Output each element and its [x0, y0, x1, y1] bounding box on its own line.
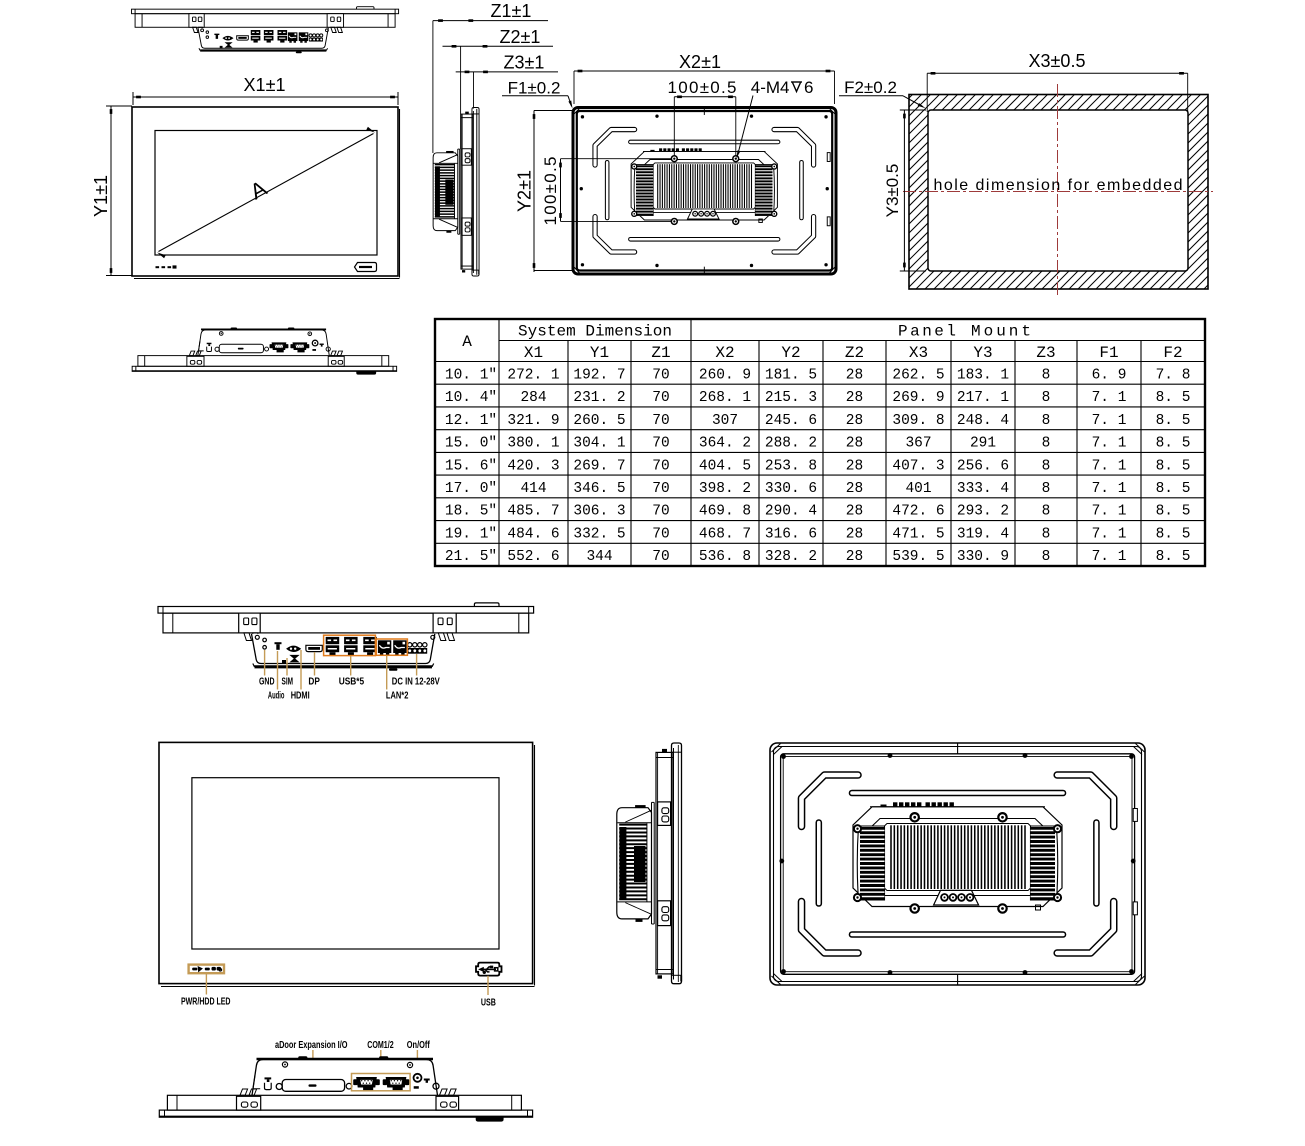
svg-text:333. 4: 333. 4: [957, 481, 1009, 497]
svg-text:Z2: Z2: [845, 344, 864, 362]
svg-text:7. 1: 7. 1: [1092, 549, 1127, 565]
svg-text:F1±0.2: F1±0.2: [508, 79, 561, 98]
svg-text:17. 0": 17. 0": [445, 481, 497, 497]
svg-text:253. 8: 253. 8: [765, 458, 817, 474]
svg-text:70: 70: [652, 390, 669, 406]
svg-text:328. 2: 328. 2: [765, 549, 817, 565]
svg-text:380. 1: 380. 1: [507, 436, 559, 452]
svg-text:7. 1: 7. 1: [1092, 390, 1127, 406]
svg-text:215. 3: 215. 3: [765, 390, 817, 406]
svg-text:SIM: SIM: [282, 677, 294, 688]
svg-text:304. 1: 304. 1: [573, 436, 625, 452]
svg-text:284: 284: [520, 390, 546, 406]
svg-text:Z1: Z1: [651, 344, 670, 362]
svg-text:10. 1": 10. 1": [445, 367, 497, 383]
svg-text:291: 291: [970, 436, 996, 452]
svg-text:8. 5: 8. 5: [1156, 436, 1191, 452]
svg-text:552. 6: 552. 6: [507, 549, 559, 565]
svg-text:Y1±1: Y1±1: [91, 175, 111, 217]
svg-text:248. 4: 248. 4: [957, 413, 1009, 429]
svg-text:Y3±0.5: Y3±0.5: [883, 164, 902, 218]
svg-text:LAN*2: LAN*2: [386, 690, 409, 701]
svg-text:536. 8: 536. 8: [699, 549, 751, 565]
svg-text:7. 1: 7. 1: [1092, 413, 1127, 429]
svg-text:12. 1": 12. 1": [445, 413, 497, 429]
svg-text:8: 8: [1042, 390, 1051, 406]
svg-text:A: A: [462, 333, 472, 351]
svg-text:401: 401: [905, 481, 931, 497]
svg-text:344: 344: [586, 549, 612, 565]
svg-text:70: 70: [652, 549, 669, 565]
svg-text:272. 1: 272. 1: [507, 367, 559, 383]
svg-text:469. 8: 469. 8: [699, 504, 751, 520]
svg-text:Z3: Z3: [1036, 344, 1055, 362]
svg-text:7. 1: 7. 1: [1092, 526, 1127, 542]
svg-text:8: 8: [1042, 367, 1051, 383]
svg-text:Z2±1: Z2±1: [500, 27, 541, 47]
svg-text:aDoor Expansion I/O: aDoor Expansion I/O: [275, 1040, 348, 1051]
svg-text:X1: X1: [524, 344, 543, 362]
svg-text:6: 6: [804, 78, 813, 97]
svg-text:HDMI: HDMI: [291, 690, 310, 701]
svg-text:28: 28: [846, 549, 863, 565]
svg-text:8. 5: 8. 5: [1156, 549, 1191, 565]
svg-text:GND: GND: [259, 677, 275, 688]
svg-text:COM1/2: COM1/2: [367, 1040, 394, 1051]
svg-text:X2: X2: [715, 344, 734, 362]
svg-text:539. 5: 539. 5: [892, 549, 944, 565]
svg-text:Y2±1: Y2±1: [515, 170, 535, 212]
svg-text:hole dimension for embedded: hole dimension for embedded: [934, 177, 1183, 194]
svg-text:6. 9: 6. 9: [1092, 367, 1127, 383]
svg-text:70: 70: [652, 504, 669, 520]
svg-text:484. 6: 484. 6: [507, 526, 559, 542]
svg-text:Y3: Y3: [973, 344, 992, 362]
svg-text:245. 6: 245. 6: [765, 413, 817, 429]
svg-text:7. 8: 7. 8: [1156, 367, 1191, 383]
svg-text:18. 5": 18. 5": [445, 504, 497, 520]
svg-text:471. 5: 471. 5: [892, 526, 944, 542]
svg-text:19. 1": 19. 1": [445, 526, 497, 542]
svg-text:8. 5: 8. 5: [1156, 458, 1191, 474]
svg-text:293. 2: 293. 2: [957, 504, 1009, 520]
svg-text:28: 28: [846, 367, 863, 383]
svg-text:192. 7: 192. 7: [573, 367, 625, 383]
svg-text:321. 9: 321. 9: [507, 413, 559, 429]
svg-text:307: 307: [712, 413, 738, 429]
svg-text:F2±0.2: F2±0.2: [844, 78, 897, 97]
svg-text:PWR/HDD LED: PWR/HDD LED: [181, 997, 231, 1008]
svg-text:231. 2: 231. 2: [573, 390, 625, 406]
svg-text:28: 28: [846, 526, 863, 542]
svg-text:420. 3: 420. 3: [507, 458, 559, 474]
svg-text:USB: USB: [481, 998, 496, 1009]
svg-text:330. 6: 330. 6: [765, 481, 817, 497]
svg-text:Mount: Mount: [971, 323, 1031, 341]
svg-text:468. 7: 468. 7: [699, 526, 751, 542]
svg-text:269. 9: 269. 9: [892, 390, 944, 406]
svg-text:28: 28: [846, 481, 863, 497]
svg-text:100±0.5: 100±0.5: [668, 78, 737, 97]
svg-text:183. 1: 183. 1: [957, 367, 1009, 383]
svg-text:8. 5: 8. 5: [1156, 504, 1191, 520]
svg-text:21. 5": 21. 5": [445, 549, 497, 565]
svg-text:367: 367: [905, 436, 931, 452]
svg-text:260. 9: 260. 9: [699, 367, 751, 383]
svg-text:15. 0": 15. 0": [445, 436, 497, 452]
svg-text:398. 2: 398. 2: [699, 481, 751, 497]
svg-text:Z1±1: Z1±1: [491, 1, 532, 21]
svg-text:288. 2: 288. 2: [765, 436, 817, 452]
svg-text:8: 8: [1042, 436, 1051, 452]
svg-text:System Dimension: System Dimension: [518, 323, 672, 341]
svg-text:8. 5: 8. 5: [1156, 413, 1191, 429]
svg-text:309. 8: 309. 8: [892, 413, 944, 429]
svg-text:8: 8: [1042, 549, 1051, 565]
svg-text:DC IN 12-28V: DC IN 12-28V: [392, 677, 440, 688]
svg-text:404. 5: 404. 5: [699, 458, 751, 474]
svg-text:472. 6: 472. 6: [892, 504, 944, 520]
svg-text:70: 70: [652, 526, 669, 542]
svg-text:X3: X3: [909, 344, 928, 362]
svg-text:332. 5: 332. 5: [573, 526, 625, 542]
svg-text:Panel: Panel: [898, 323, 956, 341]
svg-text:15. 6": 15. 6": [445, 458, 497, 474]
svg-text:364. 2: 364. 2: [699, 436, 751, 452]
svg-text:260. 5: 260. 5: [573, 413, 625, 429]
svg-text:7. 1: 7. 1: [1092, 481, 1127, 497]
svg-text:70: 70: [652, 436, 669, 452]
svg-text:256. 6: 256. 6: [957, 458, 1009, 474]
svg-text:269. 7: 269. 7: [573, 458, 625, 474]
svg-text:8: 8: [1042, 526, 1051, 542]
svg-text:Y1: Y1: [590, 344, 609, 362]
svg-text:USB*5: USB*5: [339, 677, 365, 688]
svg-text:70: 70: [652, 458, 669, 474]
svg-text:X2±1: X2±1: [679, 52, 721, 72]
svg-text:28: 28: [846, 436, 863, 452]
svg-text:217. 1: 217. 1: [957, 390, 1009, 406]
svg-text:DP: DP: [308, 677, 320, 688]
svg-text:8: 8: [1042, 504, 1051, 520]
svg-text:70: 70: [652, 367, 669, 383]
svg-text:7. 1: 7. 1: [1092, 458, 1127, 474]
svg-text:8. 5: 8. 5: [1156, 481, 1191, 497]
svg-text:414: 414: [520, 481, 546, 497]
svg-text:346. 5: 346. 5: [573, 481, 625, 497]
svg-text:407. 3: 407. 3: [892, 458, 944, 474]
svg-text:10. 4": 10. 4": [445, 390, 497, 406]
svg-text:Y2: Y2: [781, 344, 800, 362]
svg-text:70: 70: [652, 481, 669, 497]
svg-text:Audio: Audio: [268, 690, 285, 701]
svg-text:4-M4: 4-M4: [751, 78, 790, 97]
svg-text:X3±0.5: X3±0.5: [1029, 51, 1086, 71]
svg-text:7. 1: 7. 1: [1092, 504, 1127, 520]
svg-text:181. 5: 181. 5: [765, 367, 817, 383]
svg-text:8: 8: [1042, 481, 1051, 497]
svg-text:F1: F1: [1099, 344, 1118, 362]
svg-text:306. 3: 306. 3: [573, 504, 625, 520]
svg-text:8: 8: [1042, 458, 1051, 474]
svg-text:70: 70: [652, 413, 669, 429]
svg-text:100±0.5: 100±0.5: [541, 157, 560, 226]
svg-text:F2: F2: [1163, 344, 1182, 362]
svg-text:330. 9: 330. 9: [957, 549, 1009, 565]
svg-text:28: 28: [846, 458, 863, 474]
svg-text:8. 5: 8. 5: [1156, 526, 1191, 542]
svg-text:319. 4: 319. 4: [957, 526, 1009, 542]
svg-text:290. 4: 290. 4: [765, 504, 817, 520]
svg-text:316. 6: 316. 6: [765, 526, 817, 542]
svg-text:28: 28: [846, 413, 863, 429]
svg-text:X1±1: X1±1: [244, 75, 286, 95]
svg-text:262. 5: 262. 5: [892, 367, 944, 383]
svg-text:268. 1: 268. 1: [699, 390, 751, 406]
svg-text:28: 28: [846, 390, 863, 406]
svg-text:7. 1: 7. 1: [1092, 436, 1127, 452]
svg-text:485. 7: 485. 7: [507, 504, 559, 520]
svg-text:8. 5: 8. 5: [1156, 390, 1191, 406]
svg-text:On/Off: On/Off: [407, 1040, 430, 1051]
svg-text:Z3±1: Z3±1: [504, 53, 545, 73]
svg-text:28: 28: [846, 504, 863, 520]
svg-text:8: 8: [1042, 413, 1051, 429]
